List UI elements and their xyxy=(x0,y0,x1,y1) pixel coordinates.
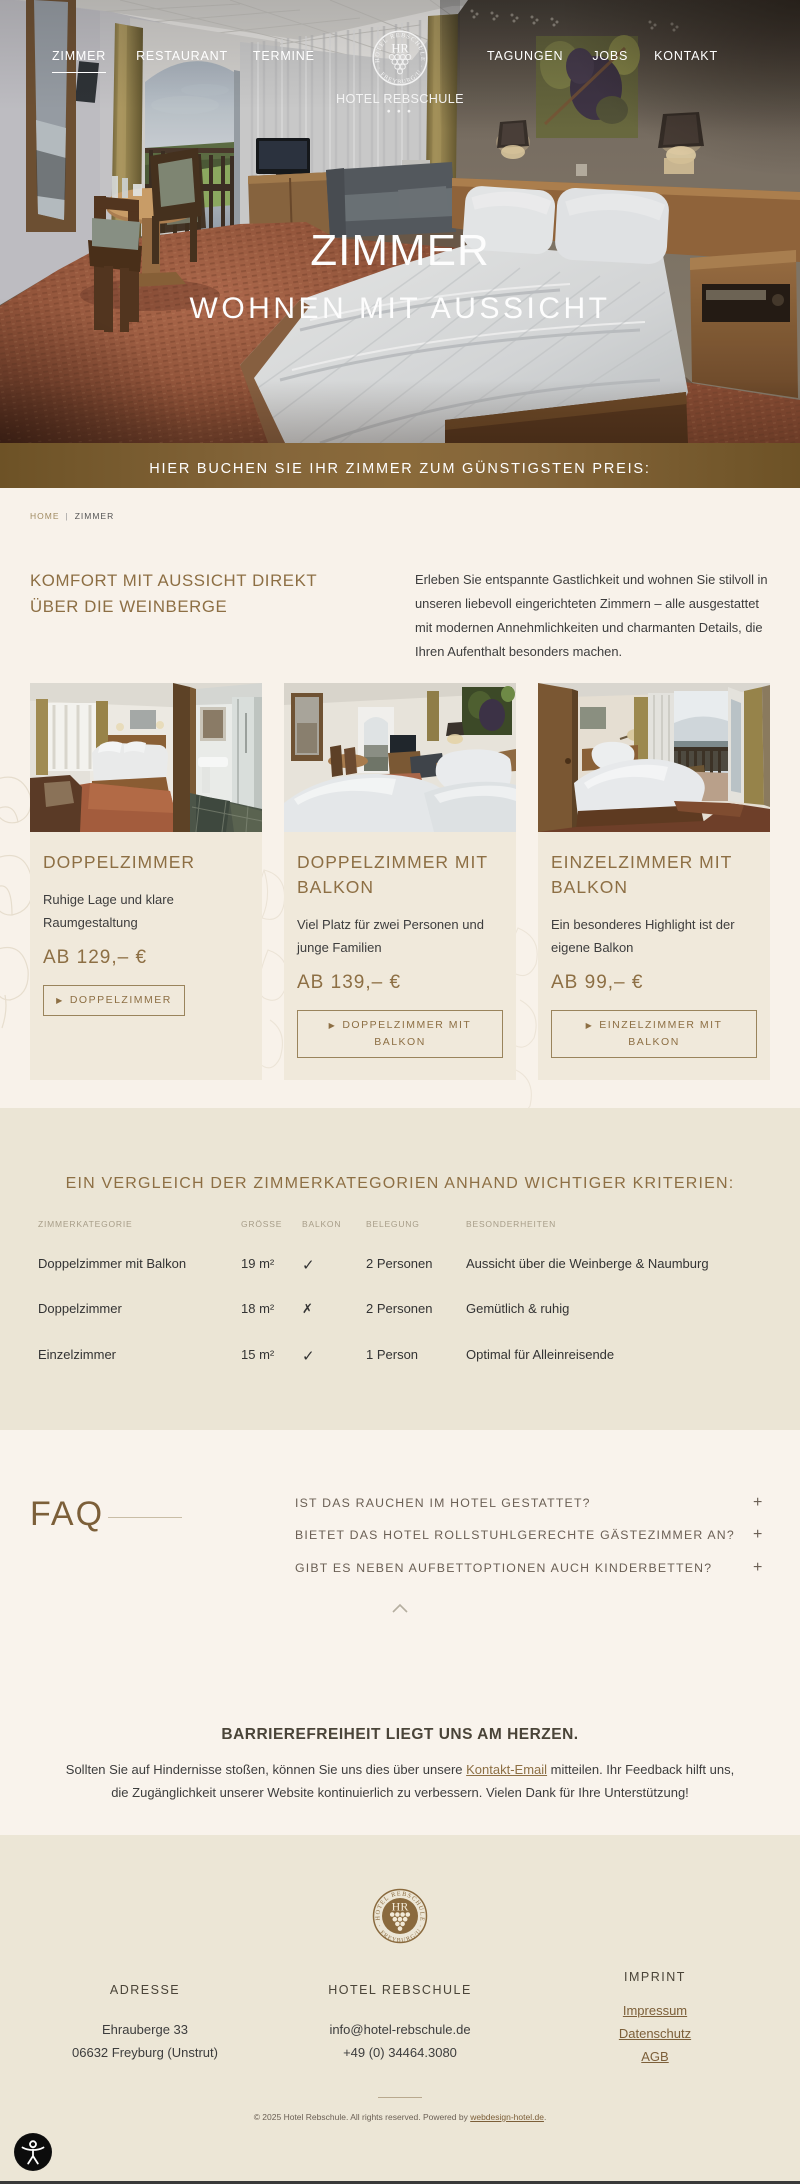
svg-text:HR: HR xyxy=(391,42,409,56)
svg-text:HR: HR xyxy=(392,1900,409,1914)
